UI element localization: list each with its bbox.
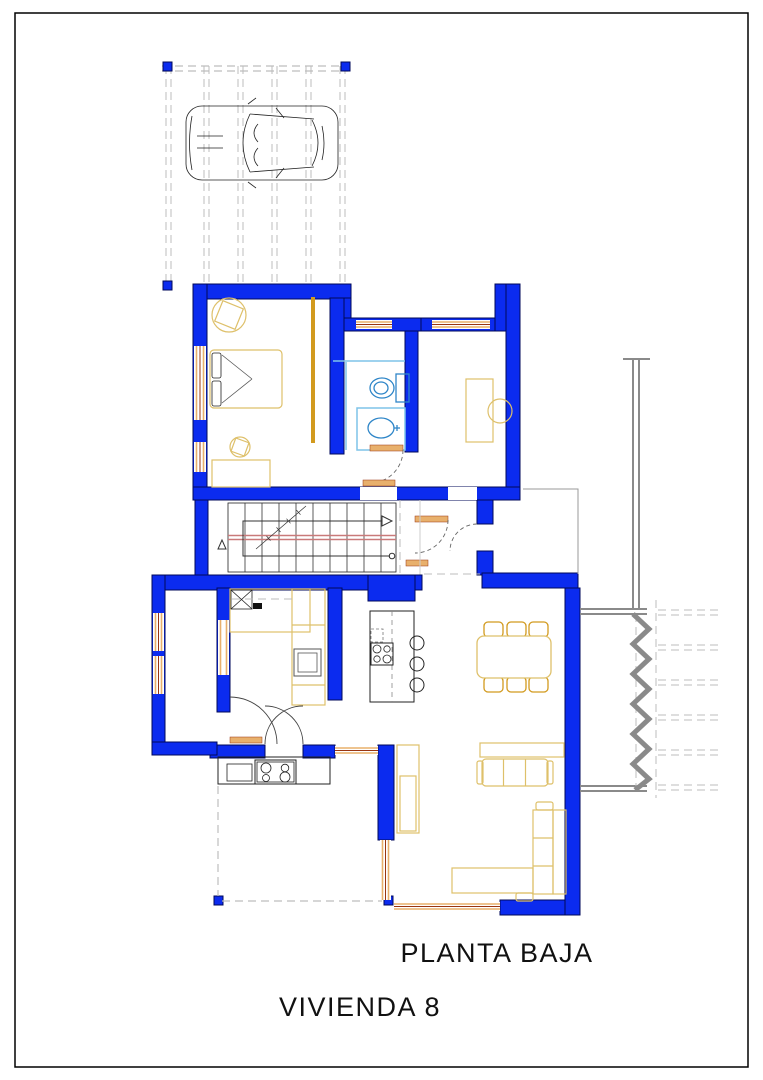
floor-plan-drawing: PLANTA BAJA VIVIENDA 8 [0, 0, 763, 1080]
entry-porch [523, 489, 578, 574]
staircase [218, 500, 420, 575]
study-furniture [466, 379, 512, 442]
kitchen-fittings [230, 589, 325, 705]
floor-plan-sheet: PLANTA BAJA VIVIENDA 8 [0, 0, 763, 1080]
living-room-furniture [397, 743, 566, 901]
bedroom-furniture [210, 297, 315, 487]
dining-set [477, 622, 551, 692]
lower-doors [230, 574, 480, 744]
plan-title: PLANTA BAJA [400, 938, 593, 968]
site-rails-hedge [580, 359, 722, 798]
lower-block-walls [152, 573, 580, 915]
terrace-outline [218, 786, 382, 901]
lower-windows [153, 613, 500, 911]
carport-pergola [162, 62, 350, 290]
bbq-counter [218, 757, 330, 784]
dwelling-title: VIVIENDA 8 [279, 992, 441, 1022]
kitchen-island [370, 611, 424, 702]
